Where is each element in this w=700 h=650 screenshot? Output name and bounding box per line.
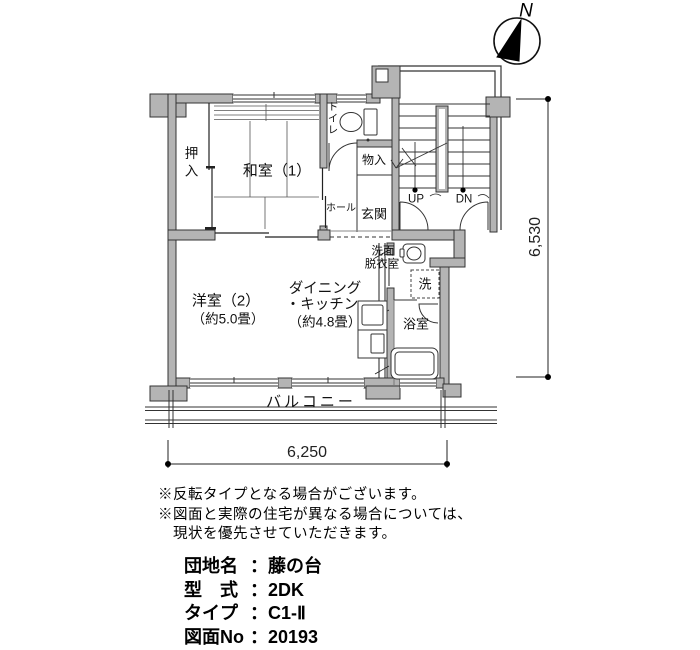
bathtub-icon xyxy=(391,348,438,379)
room-label-dk-1: ダイニング xyxy=(289,282,362,297)
room-label-toilet: トイレ xyxy=(327,101,338,136)
wall-washitsu-east-top xyxy=(320,94,327,168)
dimension-horizontal-value: 6,250 xyxy=(287,445,327,461)
wall-step-h xyxy=(430,258,465,267)
wall-washitsu-south-r xyxy=(318,230,330,240)
wall-washitsu-south-l xyxy=(168,230,215,240)
info-label: タイプ xyxy=(184,602,250,626)
window-washitsu xyxy=(233,92,315,103)
stairs-up-label: UP xyxy=(408,194,424,206)
window-yoshitsu xyxy=(190,377,278,388)
wall-toilet-bottom xyxy=(357,140,392,147)
info-value: 2DK xyxy=(268,580,304,600)
room-label-senmen-1: 洗面 xyxy=(372,246,395,258)
compass-north-label: N xyxy=(519,2,533,21)
info-value: C1-Ⅱ xyxy=(268,603,306,623)
room-label-dk-2: ・キッチン xyxy=(286,298,359,313)
info-value: 20193 xyxy=(268,627,318,647)
note-line: 現状を優先させていただきます。 xyxy=(158,525,472,545)
room-label-dk-3: （約4.8畳） xyxy=(289,315,362,329)
washer-label: 洗 xyxy=(418,278,431,291)
window-toilet xyxy=(337,94,366,103)
info-label: 型 式 xyxy=(184,579,250,603)
note-line: ※図面と実際の住宅が異なる場合については、 xyxy=(158,506,472,526)
info-row-drawing: 図面No：20193 xyxy=(184,626,322,650)
info-row-type: タイプ：C1-Ⅱ xyxy=(184,602,322,626)
wall-pier-botright xyxy=(443,384,461,397)
info-label: 団地名 xyxy=(184,555,250,579)
kitchen-counter-icon xyxy=(358,301,387,358)
entrance-door-left xyxy=(400,202,428,230)
note-line: ※反転タイプとなる場合がございます。 xyxy=(158,486,472,506)
property-info-block: 団地名：藤の台 型 式：2DK タイプ：C1-Ⅱ 図面No：20193 xyxy=(184,555,322,649)
info-separator: ： xyxy=(250,603,268,623)
up-dot xyxy=(412,187,417,192)
window-dk xyxy=(292,377,364,388)
room-label-senmen-2: 脱衣室 xyxy=(365,259,400,271)
compass-icon xyxy=(494,18,540,64)
washitsu-east-fusuma xyxy=(323,168,326,228)
info-separator: ： xyxy=(250,556,268,576)
floorplan-page: N 押入 和室（1） トイレ 物入 ホール 玄関 UP DN 洗面 脱衣室 洗 … xyxy=(0,0,700,650)
info-label: 図面No xyxy=(184,626,250,650)
info-separator: ： xyxy=(250,580,268,600)
room-label-bath: 浴室 xyxy=(403,318,429,331)
notes-block: ※反転タイプとなる場合がございます。 ※図面と実際の住宅が異なる場合については、… xyxy=(158,486,472,545)
room-label-yoshitsu-2: （約5.0畳） xyxy=(192,312,265,326)
room-label-genkan: 玄関 xyxy=(361,208,387,221)
sink-icon xyxy=(400,244,425,263)
toilet-door xyxy=(329,143,357,171)
wall-right xyxy=(490,117,497,232)
wall-top-1 xyxy=(176,94,233,103)
washitsu-south-fusuma xyxy=(215,233,318,237)
wall-bottom-2 xyxy=(278,378,292,388)
stairs-dn-label: DN xyxy=(456,194,473,206)
room-label-hall: ホール xyxy=(326,204,356,214)
entrance-door-right xyxy=(460,202,488,230)
info-row-layout: 型 式：2DK xyxy=(184,579,322,603)
dn-dot xyxy=(460,187,465,192)
room-label-washitsu: 和室（1） xyxy=(243,164,311,179)
room-label-balcony: バルコニー xyxy=(266,395,356,410)
room-label-yoshitsu-1: 洋室（2） xyxy=(192,294,260,309)
wall-bath-right xyxy=(440,267,449,386)
wall-pier-botmid xyxy=(366,386,400,399)
room-label-oshiire: 押入 xyxy=(183,146,197,181)
toilet-icon xyxy=(340,109,377,142)
wall-pier-topright xyxy=(486,97,510,117)
info-value: 藤の台 xyxy=(268,556,322,576)
info-row-estate: 団地名：藤の台 xyxy=(184,555,322,579)
wall-landing-bottom xyxy=(392,230,464,240)
porch-slot xyxy=(376,69,388,82)
dimension-vertical-value: 6,530 xyxy=(528,217,544,257)
stairs xyxy=(391,104,490,198)
room-label-monoire: 物入 xyxy=(362,154,386,166)
info-separator: ： xyxy=(250,627,268,647)
